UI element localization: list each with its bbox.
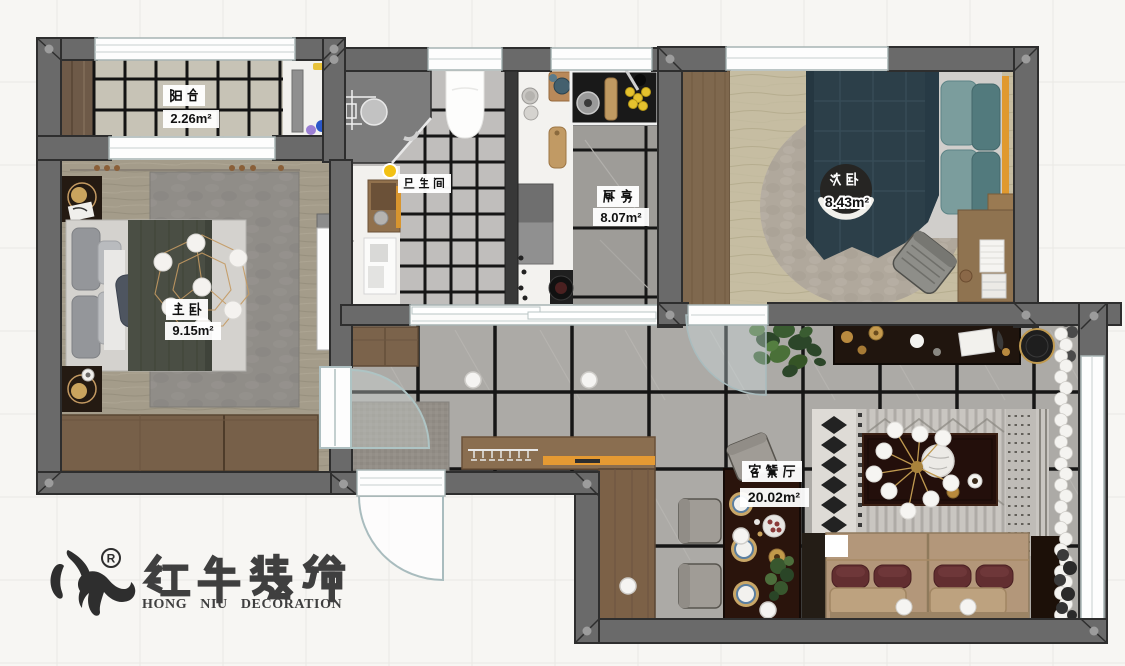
svg-text:8.43m²: 8.43m² (825, 194, 870, 210)
svg-text:R: R (107, 552, 116, 566)
svg-text:HONG NIU DECORATION: HONG NIU DECORATION (142, 597, 342, 612)
svg-text:20.02m²: 20.02m² (748, 489, 800, 505)
svg-text:2.26m²: 2.26m² (170, 111, 212, 126)
svg-text:9.15m²: 9.15m² (172, 323, 214, 338)
svg-text:8.07m²: 8.07m² (600, 210, 642, 225)
